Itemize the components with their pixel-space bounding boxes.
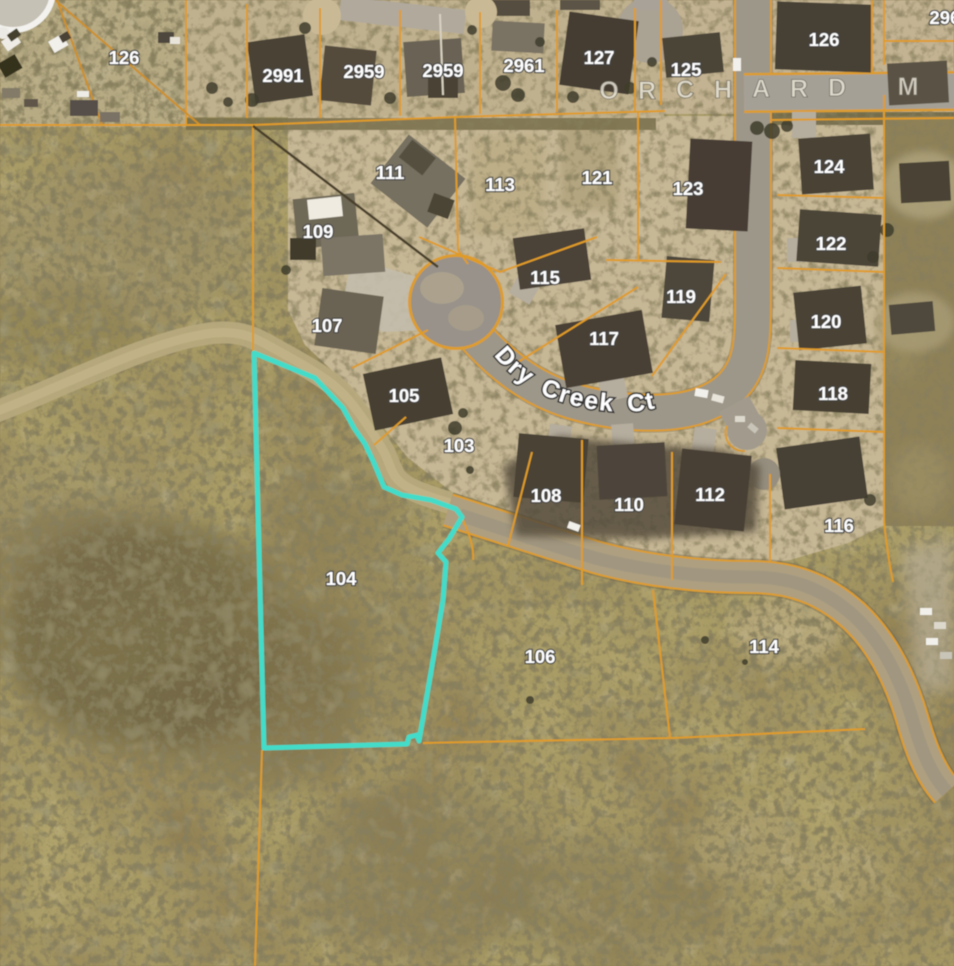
svg-text:A: A — [752, 75, 770, 103]
svg-text:124: 124 — [814, 156, 846, 177]
svg-text:2961: 2961 — [929, 7, 954, 28]
svg-text:O: O — [599, 77, 618, 105]
svg-text:115: 115 — [530, 267, 560, 288]
svg-text:118: 118 — [818, 383, 848, 404]
svg-text:106: 106 — [525, 646, 556, 667]
svg-text:112: 112 — [695, 484, 725, 505]
svg-text:127: 127 — [584, 47, 615, 68]
svg-text:121: 121 — [582, 167, 613, 188]
svg-text:113: 113 — [485, 174, 515, 195]
svg-text:M: M — [898, 73, 919, 101]
svg-text:114: 114 — [749, 636, 780, 657]
svg-text:116: 116 — [824, 515, 854, 536]
svg-text:C: C — [676, 76, 694, 104]
svg-text:2961: 2961 — [503, 55, 544, 76]
svg-text:123: 123 — [673, 178, 704, 199]
svg-text:126: 126 — [109, 47, 140, 68]
svg-text:2959: 2959 — [343, 61, 384, 82]
svg-text:R: R — [638, 77, 656, 105]
svg-text:107: 107 — [312, 315, 343, 336]
svg-text:108: 108 — [531, 485, 562, 506]
svg-text:109: 109 — [303, 221, 334, 242]
svg-text:126: 126 — [809, 29, 840, 50]
svg-text:117: 117 — [589, 328, 619, 349]
svg-text:105: 105 — [389, 385, 420, 406]
svg-text:R: R — [790, 75, 808, 103]
svg-text:125: 125 — [671, 59, 702, 80]
svg-text:H: H — [714, 76, 732, 104]
svg-text:120: 120 — [811, 311, 842, 332]
svg-text:2959: 2959 — [422, 60, 463, 81]
svg-text:119: 119 — [666, 286, 696, 307]
svg-text:122: 122 — [816, 233, 847, 254]
svg-text:D: D — [828, 74, 846, 102]
svg-text:103: 103 — [444, 435, 475, 456]
svg-text:111: 111 — [376, 162, 405, 183]
svg-text:104: 104 — [326, 568, 358, 589]
svg-text:110: 110 — [614, 494, 644, 515]
svg-text:2991: 2991 — [262, 65, 303, 86]
